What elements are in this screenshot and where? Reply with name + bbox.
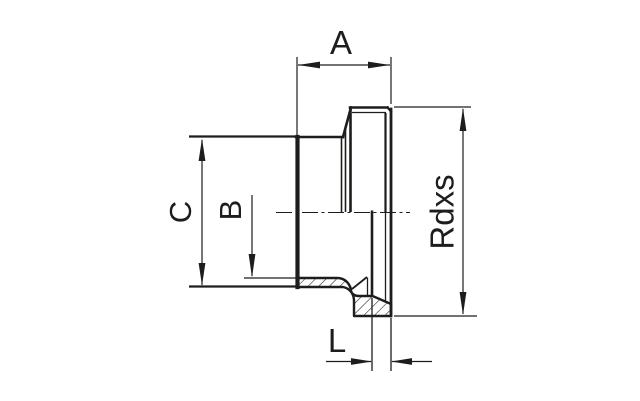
dimension-a [297,57,391,135]
section-hatch [297,278,391,316]
dimension-label-rdxs: Rdxs [424,174,461,249]
dimension-label-l: L [328,322,346,359]
dimension-label-a: A [330,24,352,61]
thread-lines [342,108,387,301]
technical-drawing: A C B Rdxs [0,0,640,401]
dimension-label-c: C [163,201,198,223]
section-inner-details [352,211,372,296]
dimension-label-b: B [213,200,248,221]
drawing-canvas: A C B Rdxs [0,0,640,401]
dimension-b [244,195,297,278]
